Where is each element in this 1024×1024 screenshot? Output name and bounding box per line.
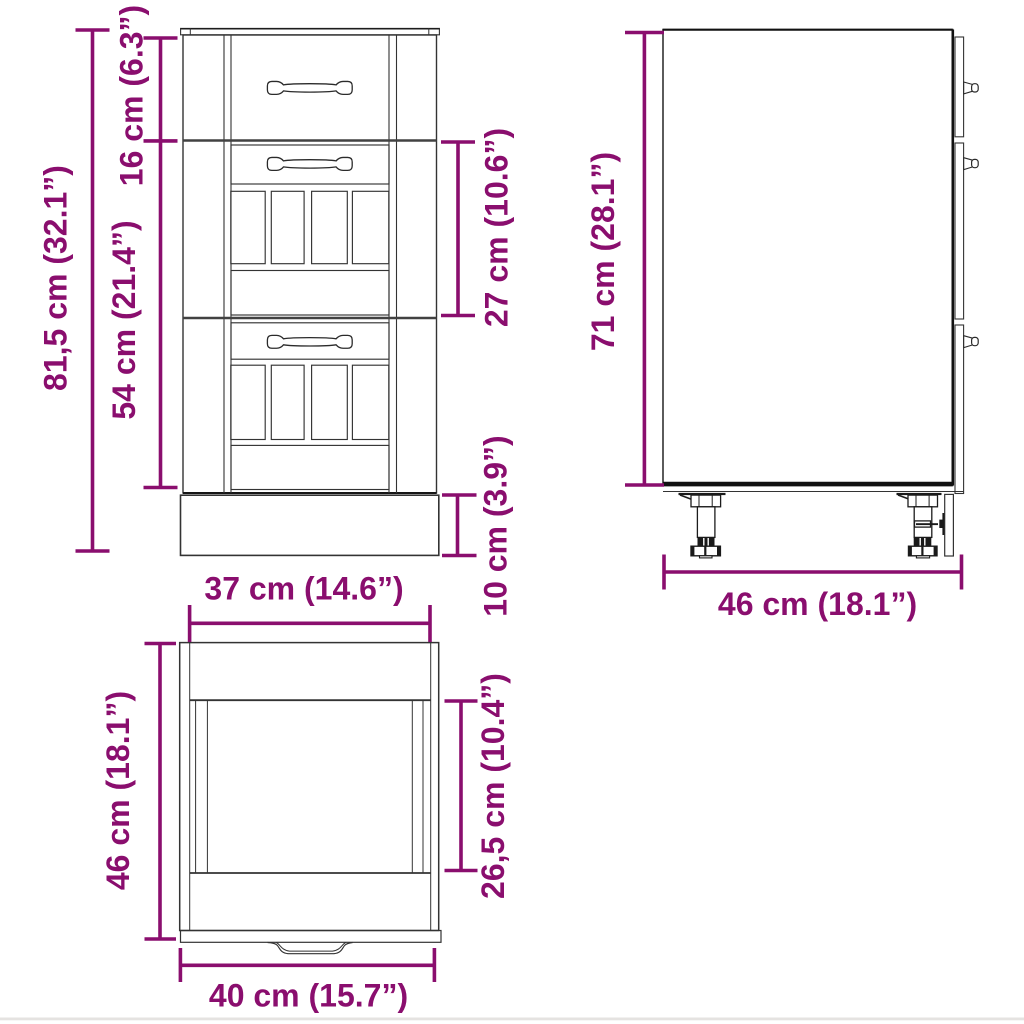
svg-text:71 cm (28.1”): 71 cm (28.1”) [585, 152, 621, 351]
svg-text:46 cm (18.1”): 46 cm (18.1”) [718, 586, 917, 622]
svg-text:16 cm (6.3”): 16 cm (6.3”) [114, 5, 150, 186]
svg-text:26,5 cm (10.4”): 26,5 cm (10.4”) [475, 673, 511, 899]
svg-text:81,5 cm (32.1”): 81,5 cm (32.1”) [38, 165, 74, 391]
svg-text:10 cm (3.9”): 10 cm (3.9”) [478, 435, 514, 616]
svg-text:46 cm (18.1”): 46 cm (18.1”) [100, 691, 136, 890]
svg-text:40 cm (15.7”): 40 cm (15.7”) [209, 978, 408, 1014]
svg-text:37 cm (14.6”): 37 cm (14.6”) [204, 571, 403, 607]
svg-text:27 cm (10.6”): 27 cm (10.6”) [479, 128, 515, 327]
svg-text:54 cm (21.4”): 54 cm (21.4”) [106, 220, 142, 419]
